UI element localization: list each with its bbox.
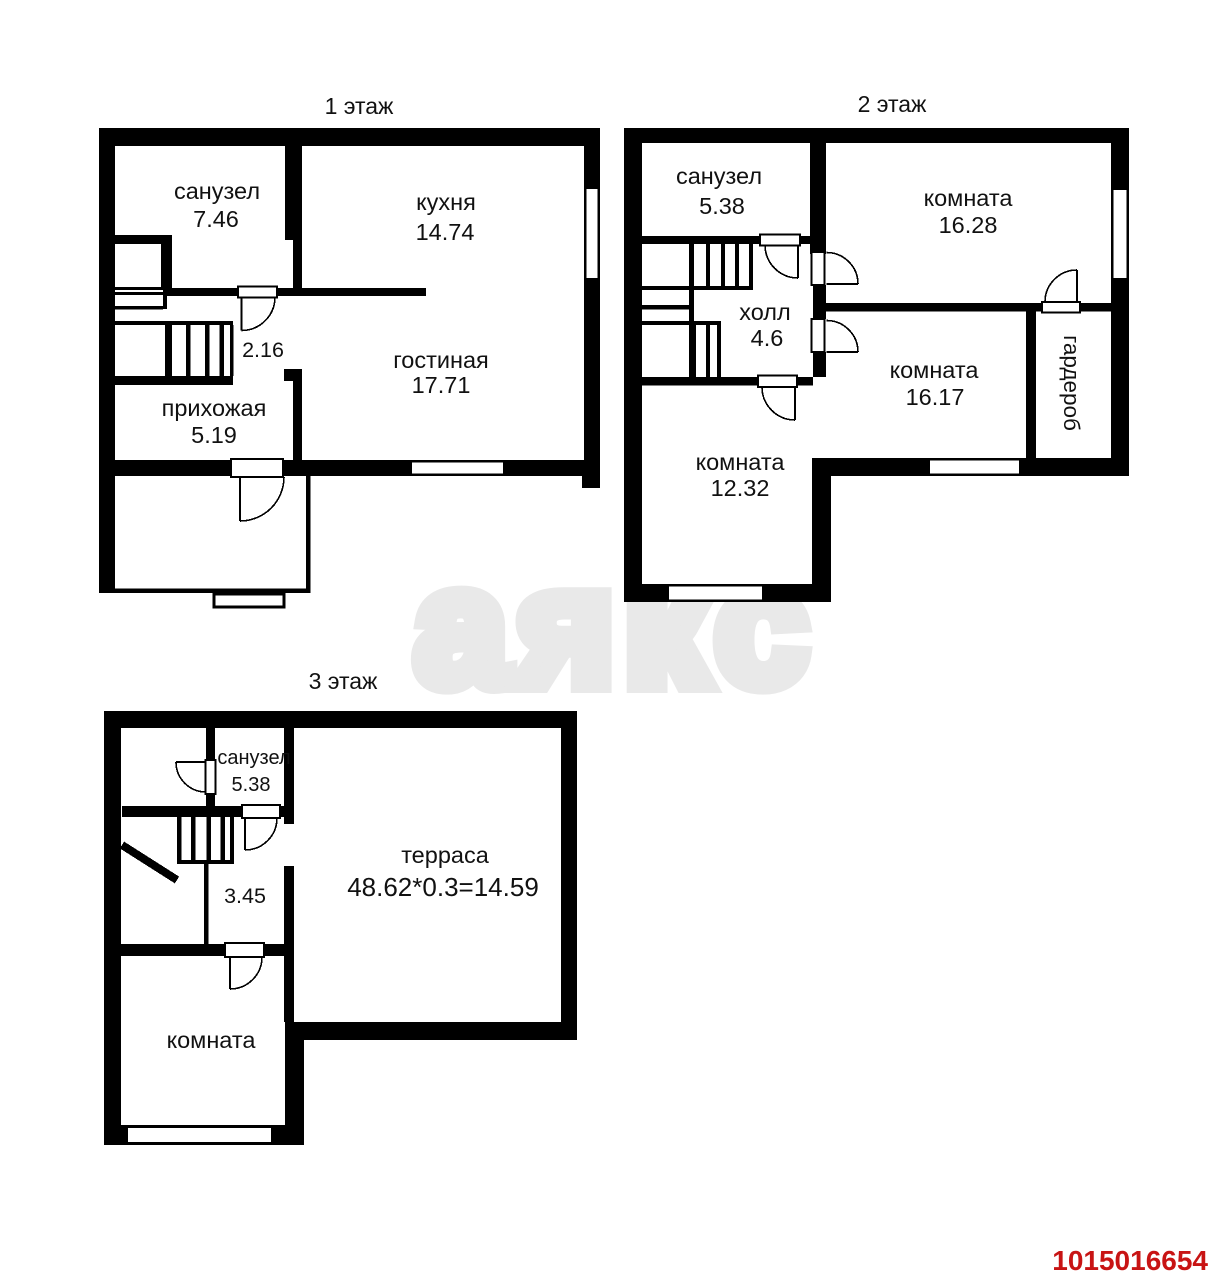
svg-text:17.71: 17.71 <box>412 372 471 398</box>
svg-text:7.46: 7.46 <box>193 206 239 232</box>
svg-text:кухня: кухня <box>416 189 476 215</box>
svg-text:14.74: 14.74 <box>416 219 475 245</box>
svg-text:2 этаж: 2 этаж <box>858 91 927 117</box>
svg-text:3 этаж: 3 этаж <box>309 668 378 694</box>
svg-text:2.16: 2.16 <box>242 338 284 362</box>
svg-text:комната: комната <box>696 449 786 475</box>
svg-text:комната: комната <box>167 1027 257 1053</box>
svg-text:5.19: 5.19 <box>191 422 237 448</box>
svg-text:5.38: 5.38 <box>232 774 271 796</box>
svg-text:гардероб: гардероб <box>1059 335 1084 431</box>
svg-text:12.32: 12.32 <box>711 475 770 501</box>
svg-text:санузел: санузел <box>217 747 290 769</box>
svg-text:48.62*0.3=14.59: 48.62*0.3=14.59 <box>347 872 539 902</box>
svg-text:4.6: 4.6 <box>751 325 784 351</box>
svg-text:3.45: 3.45 <box>224 884 266 908</box>
svg-text:5.38: 5.38 <box>699 193 745 219</box>
svg-text:санузел: санузел <box>676 163 762 189</box>
svg-text:прихожая: прихожая <box>162 395 267 421</box>
svg-text:санузел: санузел <box>174 178 260 204</box>
svg-text:терраса: терраса <box>401 842 490 868</box>
svg-text:гостиная: гостиная <box>393 347 489 373</box>
svg-text:комната: комната <box>890 357 980 383</box>
svg-text:16.17: 16.17 <box>906 384 965 410</box>
svg-text:16.28: 16.28 <box>939 212 998 238</box>
svg-text:холл: холл <box>739 299 790 325</box>
svg-text:1 этаж: 1 этаж <box>325 93 394 119</box>
svg-text:комната: комната <box>924 185 1014 211</box>
